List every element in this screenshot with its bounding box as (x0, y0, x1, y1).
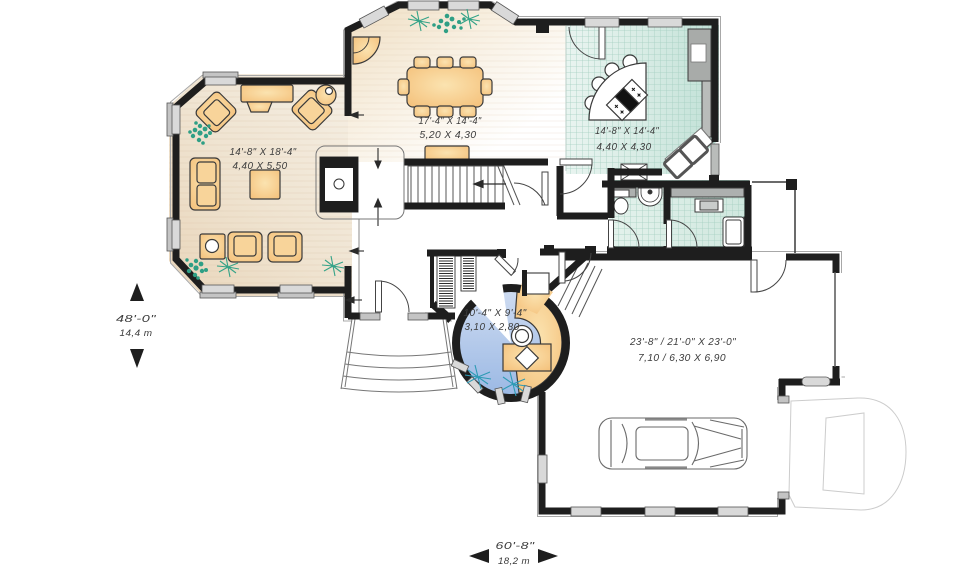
svg-text:7,10 / 6,30 X 6,90: 7,10 / 6,30 X 6,90 (638, 352, 726, 364)
svg-text:14,4 m: 14,4 m (120, 328, 153, 339)
svg-text:14'-8" X 18'-4": 14'-8" X 18'-4" (230, 146, 298, 158)
svg-text:4,40 X 5,50: 4,40 X 5,50 (233, 160, 288, 172)
svg-text:23'-8" / 21'-0" X 23'-0": 23'-8" / 21'-0" X 23'-0" (629, 336, 737, 348)
svg-text:17'-4" X 14'-4": 17'-4" X 14'-4" (419, 115, 483, 127)
svg-text:10'-4" X 9'-4": 10'-4" X 9'-4" (464, 307, 528, 319)
svg-text:18,2 m: 18,2 m (498, 556, 530, 567)
svg-text:14'-8" X 14'-4": 14'-8" X 14'-4" (595, 125, 660, 137)
svg-text:5,20 X 4,30: 5,20 X 4,30 (420, 129, 477, 141)
svg-text:60'-8": 60'-8" (496, 540, 536, 552)
svg-text:48'-0": 48'-0" (116, 313, 157, 325)
svg-text:3,10 X 2,80: 3,10 X 2,80 (465, 321, 520, 333)
svg-text:4,40 X 4,30: 4,40 X 4,30 (597, 141, 652, 153)
